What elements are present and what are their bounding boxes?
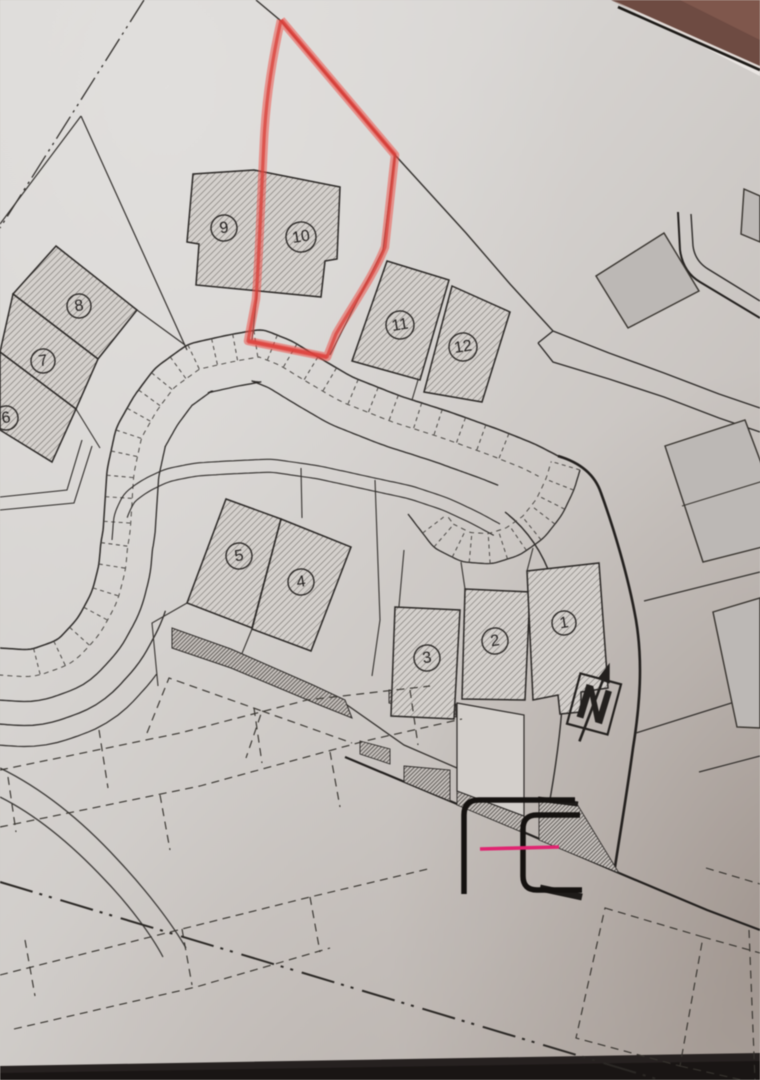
svg-text:11: 11 [391, 316, 410, 335]
svg-text:10: 10 [291, 227, 311, 247]
svg-text:12: 12 [453, 337, 473, 357]
